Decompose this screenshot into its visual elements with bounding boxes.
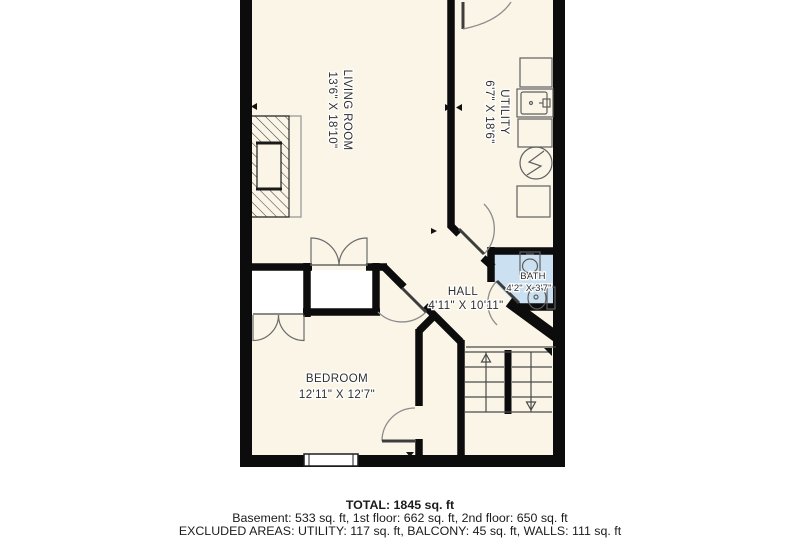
svg-text:13'6" X 18'10": 13'6" X 18'10" [326,72,338,149]
excluded-areas: EXCLUDED AREAS: UTILITY: 117 sq. ft, BAL… [0,525,800,538]
svg-text:4'2" X 3'7": 4'2" X 3'7" [506,283,551,294]
svg-text:LIVING ROOM: LIVING ROOM [341,69,353,150]
bedroom-window [304,454,358,466]
closet-right-floor [309,270,374,310]
svg-text:UTILITY: UTILITY [498,89,510,135]
svg-text:6'7" X 18'6": 6'7" X 18'6" [483,80,495,143]
svg-text:BEDROOM: BEDROOM [306,373,368,385]
svg-text:HALL: HALL [448,286,479,298]
svg-text:12'11" X 12'7": 12'11" X 12'7" [299,389,375,401]
floor-areas: Basement: 533 sq. ft, 1st floor: 662 sq.… [0,512,800,525]
area-summary: TOTAL: 1845 sq. ft Basement: 533 sq. ft,… [0,499,800,538]
floorplan-canvas: LIVING ROOM 13'6" X 18'10" UTILITY 6'7" … [0,0,800,530]
svg-text:BATH: BATH [520,271,545,282]
apartment-floor [246,0,559,459]
svg-text:4'11" X 10'11": 4'11" X 10'11" [428,300,503,312]
closet-left-floor [250,270,306,313]
total-area: TOTAL: 1845 sq. ft [0,499,800,512]
